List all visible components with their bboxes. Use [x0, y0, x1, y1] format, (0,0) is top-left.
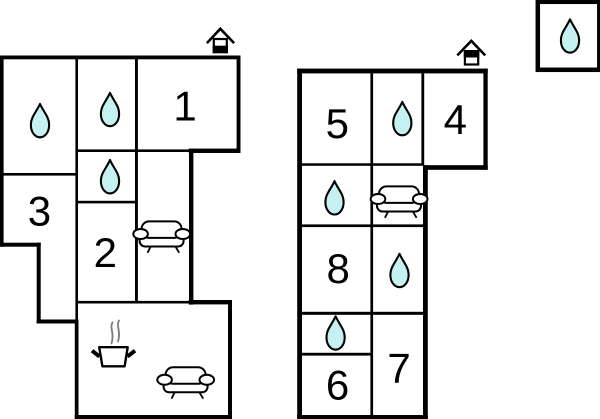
svg-text:4: 4	[444, 96, 467, 143]
svg-text:1: 1	[173, 82, 196, 129]
svg-text:8: 8	[327, 245, 350, 292]
svg-text:7: 7	[387, 345, 410, 392]
svg-text:2: 2	[94, 229, 117, 276]
svg-text:5: 5	[326, 100, 349, 147]
svg-text:6: 6	[326, 362, 349, 409]
svg-text:3: 3	[28, 187, 51, 234]
